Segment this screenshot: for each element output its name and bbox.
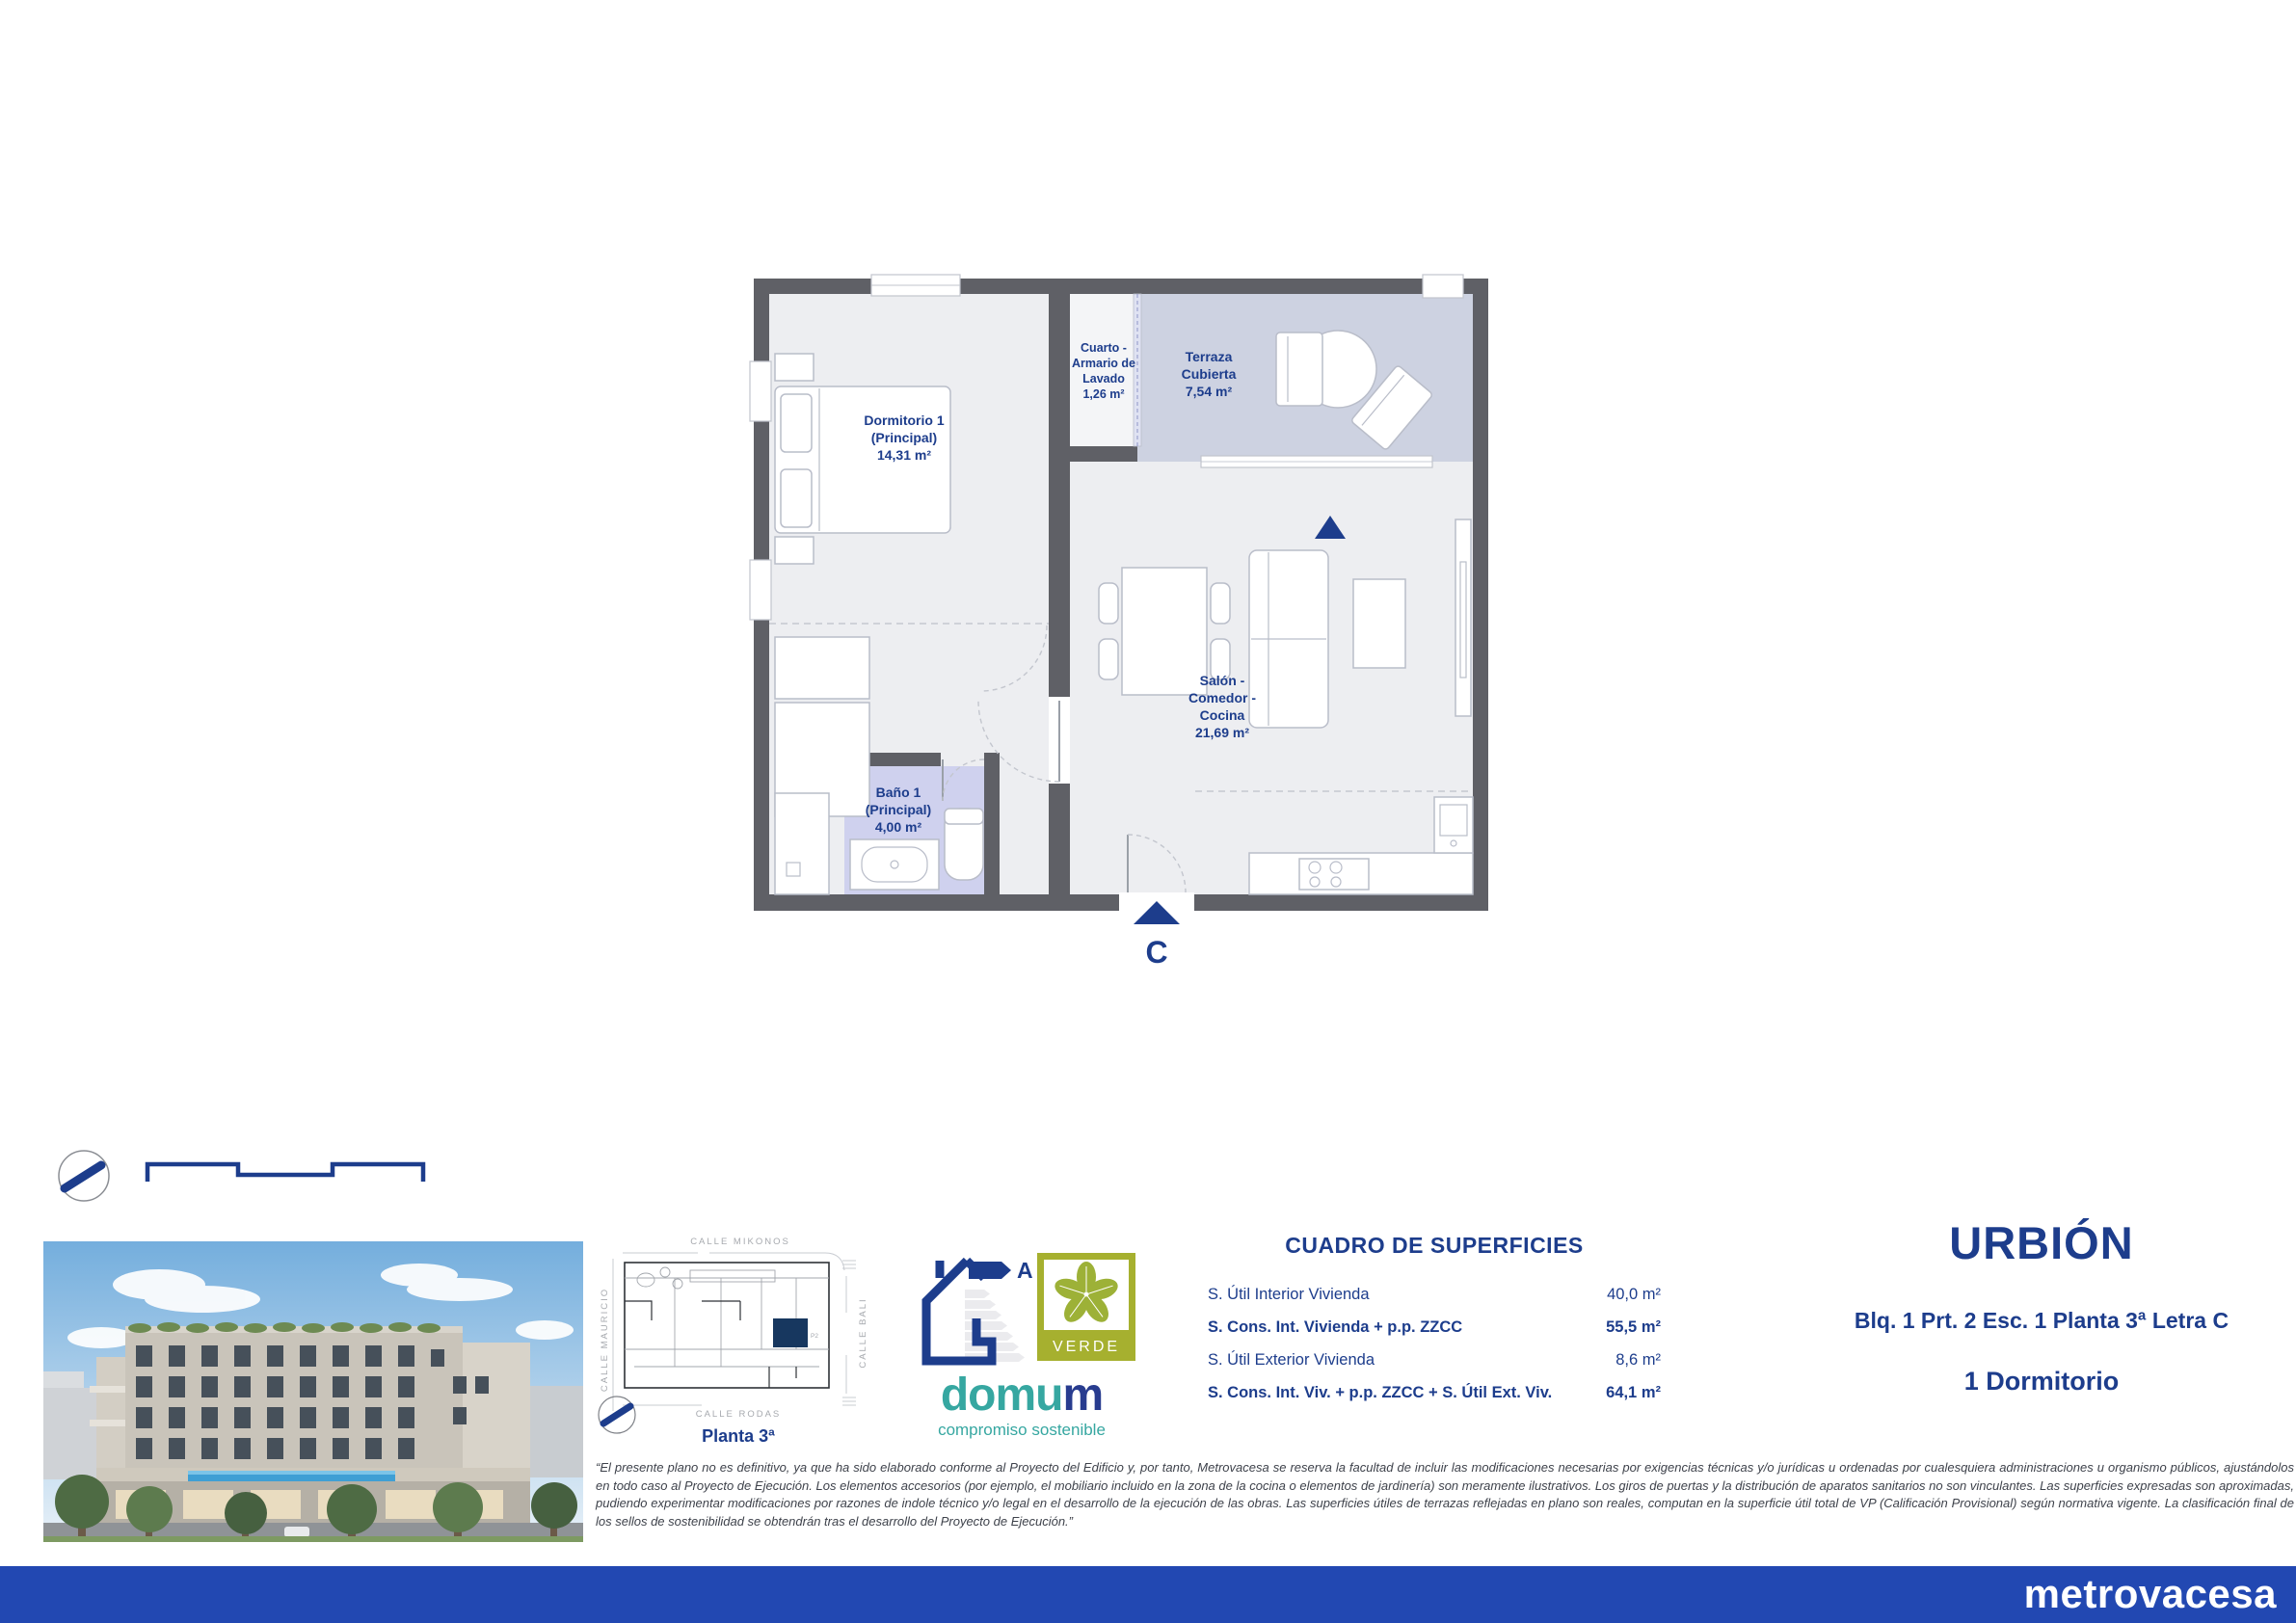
svg-text:Comedor -: Comedor - — [1188, 690, 1256, 705]
surface-value: 8,6 m² — [1615, 1351, 1661, 1370]
svg-text:Armario de: Armario de — [1072, 357, 1135, 370]
surfaces-row: S. Útil Exterior Vivienda 8,6 m² — [1208, 1344, 1661, 1376]
svg-text:Lavado: Lavado — [1082, 372, 1125, 386]
unit-location: Blq. 1 Prt. 2 Esc. 1 Planta 3ª Letra C — [1810, 1308, 2273, 1334]
energy-rating-arrow — [969, 1262, 1011, 1279]
surfaces-row: S. Útil Interior Vivienda 40,0 m² — [1208, 1278, 1661, 1311]
north-compass-icon — [53, 1145, 115, 1207]
surface-label: S. Útil Interior Vivienda — [1208, 1286, 1370, 1304]
kitchen-sink — [1434, 797, 1473, 853]
car — [284, 1527, 309, 1537]
svg-text:Terraza: Terraza — [1186, 349, 1233, 364]
surfaces-table-title: CUADRO DE SUPERFICIES — [1208, 1233, 1661, 1259]
siteplan-compass-icon — [599, 1397, 635, 1433]
surfaces-row: S. Cons. Int. Viv. + p.p. ZZCC + S. Útil… — [1208, 1376, 1661, 1409]
energy-rating-icon: A — [911, 1245, 1034, 1369]
svg-text:Dormitorio 1: Dormitorio 1 — [864, 412, 944, 428]
building-render-image — [43, 1241, 583, 1542]
bedroom-left-window-1 — [750, 361, 771, 421]
building-footprint: P2 — [625, 1263, 829, 1388]
street-label-right: CALLE BALI — [858, 1297, 868, 1368]
floor-label: Planta 3ª — [702, 1426, 775, 1446]
svg-text:Salón -: Salón - — [1200, 673, 1245, 688]
svg-text:Baño 1: Baño 1 — [876, 785, 921, 800]
surface-value: 64,1 m² — [1606, 1384, 1661, 1402]
bathroom-vanity — [850, 839, 939, 890]
surfaces-row: S. Cons. Int. Vivienda + p.p. ZZCC 55,5 … — [1208, 1311, 1661, 1344]
surface-label: S. Cons. Int. Viv. + p.p. ZZCC + S. Útil… — [1208, 1384, 1552, 1402]
bedroom-left-window-2 — [750, 560, 771, 620]
svg-text:(Principal): (Principal) — [871, 430, 937, 445]
unit-info: URBIÓN Blq. 1 Prt. 2 Esc. 1 Planta 3ª Le… — [1810, 1216, 2273, 1397]
terrace-chair-1 — [1276, 333, 1322, 406]
shower-closet — [775, 793, 829, 894]
verde-label: VERDE — [1053, 1339, 1120, 1355]
svg-text:Cuarto -: Cuarto - — [1081, 341, 1127, 355]
svg-text:(Principal): (Principal) — [866, 802, 931, 817]
surfaces-table: CUADRO DE SUPERFICIES S. Útil Interior V… — [1208, 1233, 1661, 1409]
surface-label: S. Cons. Int. Vivienda + p.p. ZZCC — [1208, 1318, 1462, 1337]
domum-logo-navy-part: m — [1062, 1370, 1103, 1421]
floor-plan: C Dormitorio 1 (Principal) 14,31 m² Cuar… — [748, 273, 1509, 1005]
legal-disclaimer: “El presente plano no es definitivo, ya … — [596, 1459, 2294, 1530]
svg-text:4,00 m²: 4,00 m² — [875, 819, 922, 835]
kitchen-counter — [1249, 853, 1473, 894]
room-label-terraza: Terraza Cubierta 7,54 m² — [1182, 349, 1237, 399]
domum-logo: domum compromiso sostenible — [904, 1372, 1139, 1440]
site-plan: CALLE MIKONOS CALLE MAURICIO CALLE BALI … — [594, 1232, 888, 1458]
metrovacesa-logo: metrovacesa — [2024, 1566, 2277, 1621]
verde-certification-badge: VERDE — [1037, 1253, 1135, 1361]
scale-bar — [145, 1153, 426, 1187]
surface-label: S. Útil Exterior Vivienda — [1208, 1351, 1375, 1370]
domum-logo-teal-part: domu — [941, 1370, 1063, 1421]
street-label-top: CALLE MIKONOS — [690, 1237, 790, 1247]
svg-text:Cocina: Cocina — [1200, 707, 1245, 723]
main-building — [90, 1322, 530, 1468]
unit-tag: P2 — [811, 1333, 818, 1340]
footer-bar: metrovacesa — [0, 1566, 2296, 1623]
svg-text:Cubierta: Cubierta — [1182, 366, 1237, 382]
svg-text:1,26 m²: 1,26 m² — [1082, 387, 1124, 401]
nightstand-1 — [775, 354, 814, 381]
sofa — [1249, 550, 1328, 728]
svg-text:14,31 m²: 14,31 m² — [877, 447, 931, 463]
coffee-table — [1353, 579, 1405, 668]
project-name: URBIÓN — [1810, 1216, 2273, 1269]
hall-closet-1 — [775, 637, 869, 699]
nightstand-2 — [775, 537, 814, 564]
domum-tagline: compromiso sostenible — [904, 1421, 1139, 1440]
terrace-corner-window — [1423, 275, 1463, 298]
grass-strip — [43, 1536, 583, 1542]
svg-text:21,69 m²: 21,69 m² — [1195, 725, 1249, 740]
unit-location-marker — [773, 1318, 808, 1347]
energy-rating-letter: A — [1017, 1258, 1033, 1283]
tv-unit — [1455, 519, 1471, 716]
surface-value: 55,5 m² — [1606, 1318, 1661, 1337]
unit-type: 1 Dormitorio — [1810, 1367, 2273, 1397]
surface-value: 40,0 m² — [1607, 1286, 1661, 1304]
street-label-left: CALLE MAURICIO — [600, 1288, 610, 1392]
street-label-bottom: CALLE RODAS — [696, 1409, 782, 1420]
entrance-letter: C — [1145, 935, 1167, 970]
toilet — [945, 809, 983, 880]
svg-text:7,54 m²: 7,54 m² — [1186, 384, 1233, 399]
